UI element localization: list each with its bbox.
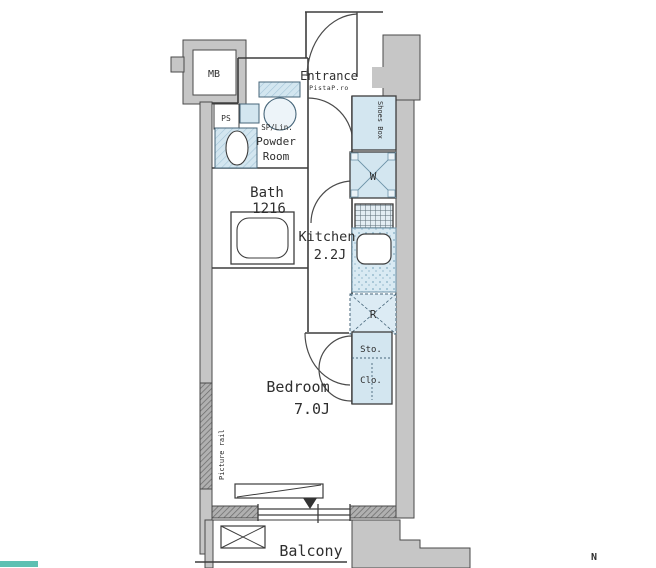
balcony-west-wall — [205, 520, 213, 568]
kitchen-sink — [357, 234, 391, 264]
bath-size-label: 1216 — [252, 201, 286, 217]
toilet-tank — [259, 82, 300, 97]
shoes-box — [352, 96, 396, 150]
southeast-pillar — [352, 520, 470, 568]
south-wall-right — [350, 506, 396, 518]
picture-rail-label: Picture rail — [218, 429, 226, 480]
picture-rail-wall — [200, 383, 212, 489]
storage-closet — [352, 332, 392, 404]
fixtures — [0, 82, 396, 567]
ac-triangle-marker — [303, 498, 317, 509]
meter-box-stub — [171, 57, 184, 72]
meter-box-label: MB — [208, 69, 220, 80]
northeast-pillar-tab — [372, 67, 384, 88]
teal-fragment — [0, 561, 38, 567]
balcony-label: Balcony — [279, 542, 342, 560]
powder-room-label-1: Powder — [256, 135, 296, 148]
north-indicator: N — [591, 552, 597, 563]
kitchen-size-label: 2.2J — [314, 247, 347, 263]
pipe-space-label: PS — [221, 114, 231, 123]
bathtub — [231, 212, 294, 264]
kitchen-label: Kitchen — [299, 229, 356, 245]
vanity-basin — [226, 131, 248, 165]
northeast-pillar — [383, 35, 420, 100]
refrigerator-label: R — [370, 308, 377, 321]
hall-door-arc-lower — [311, 181, 352, 223]
floorplan-canvas: MB PS Entrance PistaP.ro SP/Lin. Powder … — [0, 0, 656, 568]
entrance-note: PistaP.ro — [309, 84, 349, 92]
shoes-box-label: Shoes Box — [376, 101, 384, 139]
powder-room-label-2: Room — [263, 150, 290, 163]
closet-door-arc-upper — [319, 336, 352, 369]
east-wall — [396, 100, 414, 518]
bath-label: Bath — [250, 185, 284, 201]
floorplan-page: MB PS Entrance PistaP.ro SP/Lin. Powder … — [0, 0, 656, 568]
closet-label: Clo. — [360, 376, 382, 386]
bedroom-label: Bedroom — [266, 378, 329, 396]
south-wall-left — [212, 506, 258, 518]
powder-room-note: SP/Lin. — [261, 123, 293, 132]
air-conditioner — [235, 484, 323, 509]
storage-label: Sto. — [360, 345, 382, 355]
entrance-door-arc — [307, 14, 357, 76]
balcony-hatch — [221, 526, 265, 548]
hall-door-arc-upper — [308, 98, 353, 144]
entrance-label: Entrance — [300, 69, 358, 83]
washing-machine-label: W — [370, 170, 377, 183]
stove — [355, 204, 393, 228]
bedroom-size-label: 7.0J — [294, 400, 330, 418]
powder-basin-box — [240, 104, 259, 123]
